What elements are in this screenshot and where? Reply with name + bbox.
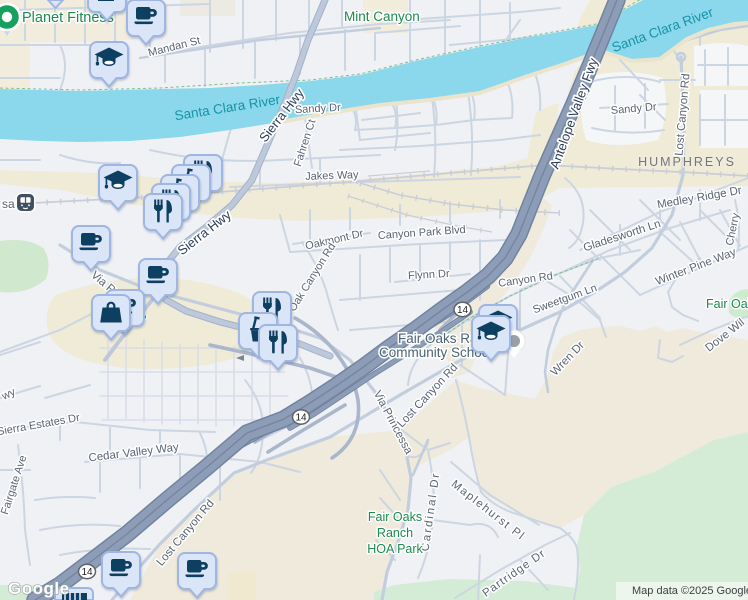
svg-text:Ranch: Ranch	[377, 526, 413, 540]
svg-text:Jakes Way: Jakes Way	[305, 169, 359, 183]
svg-text:14: 14	[457, 305, 469, 316]
svg-text:HUMPHREYS: HUMPHREYS	[638, 155, 736, 169]
svg-text:HOA Park: HOA Park	[367, 542, 423, 556]
svg-text:Fair Oaks: Fair Oaks	[368, 510, 422, 524]
svg-text:Google: Google	[8, 579, 70, 598]
svg-text:Flynn Dr: Flynn Dr	[408, 268, 450, 282]
svg-text:Map data ©2025 Google: Map data ©2025 Google	[632, 585, 748, 597]
svg-text:sa: sa	[2, 197, 15, 211]
svg-text:14: 14	[81, 567, 93, 578]
svg-text:Sandy Dr: Sandy Dr	[295, 102, 342, 116]
svg-text:Mint Canyon: Mint Canyon	[344, 9, 420, 24]
svg-text:Fair Oak: Fair Oak	[706, 297, 748, 311]
svg-text:14: 14	[295, 413, 307, 424]
